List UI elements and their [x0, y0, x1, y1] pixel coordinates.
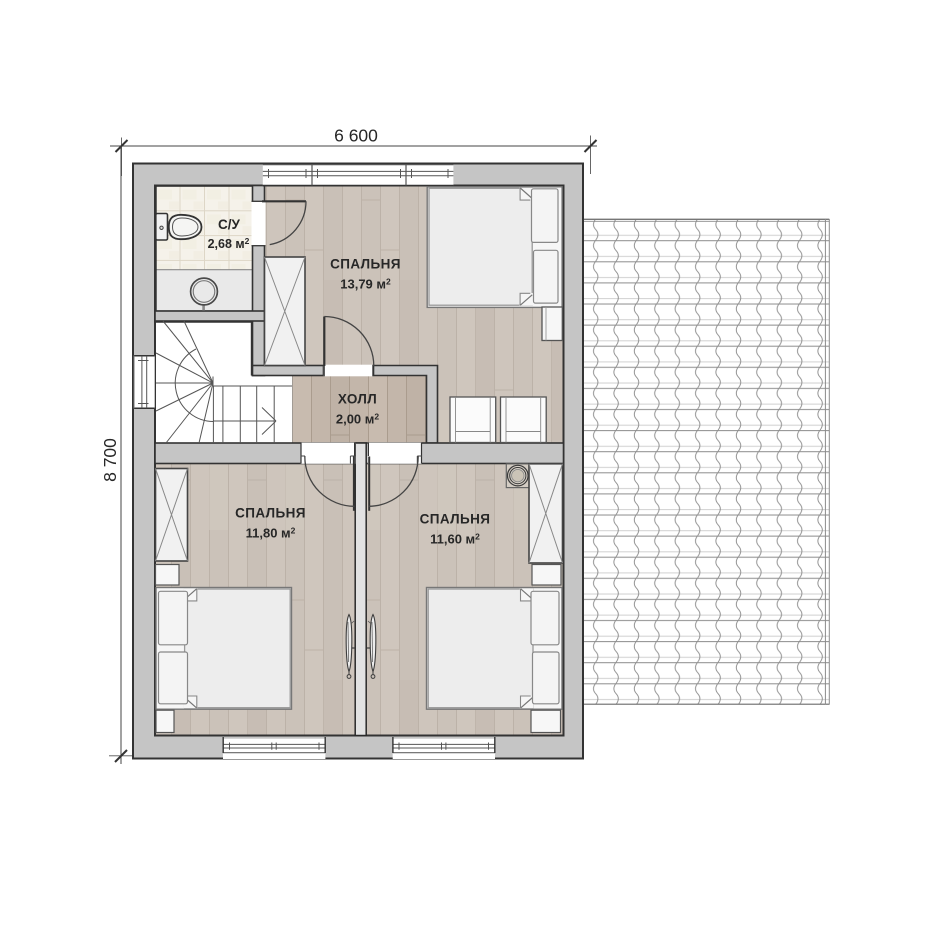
- svg-text:С/У: С/У: [218, 217, 241, 232]
- svg-text:11,80 м2: 11,80 м2: [246, 526, 296, 541]
- svg-text:11,60 м2: 11,60 м2: [430, 532, 480, 547]
- svg-text:СПАЛЬНЯ: СПАЛЬНЯ: [235, 506, 306, 521]
- svg-text:СПАЛЬНЯ: СПАЛЬНЯ: [420, 512, 491, 527]
- svg-text:8 700: 8 700: [100, 438, 120, 482]
- svg-text:2,00 м2: 2,00 м2: [336, 412, 380, 427]
- svg-text:6 600: 6 600: [334, 126, 378, 146]
- svg-text:ХОЛЛ: ХОЛЛ: [338, 392, 377, 407]
- svg-text:СПАЛЬНЯ: СПАЛЬНЯ: [330, 257, 401, 272]
- svg-text:2,68 м2: 2,68 м2: [208, 236, 250, 251]
- svg-text:13,79 м2: 13,79 м2: [340, 277, 391, 292]
